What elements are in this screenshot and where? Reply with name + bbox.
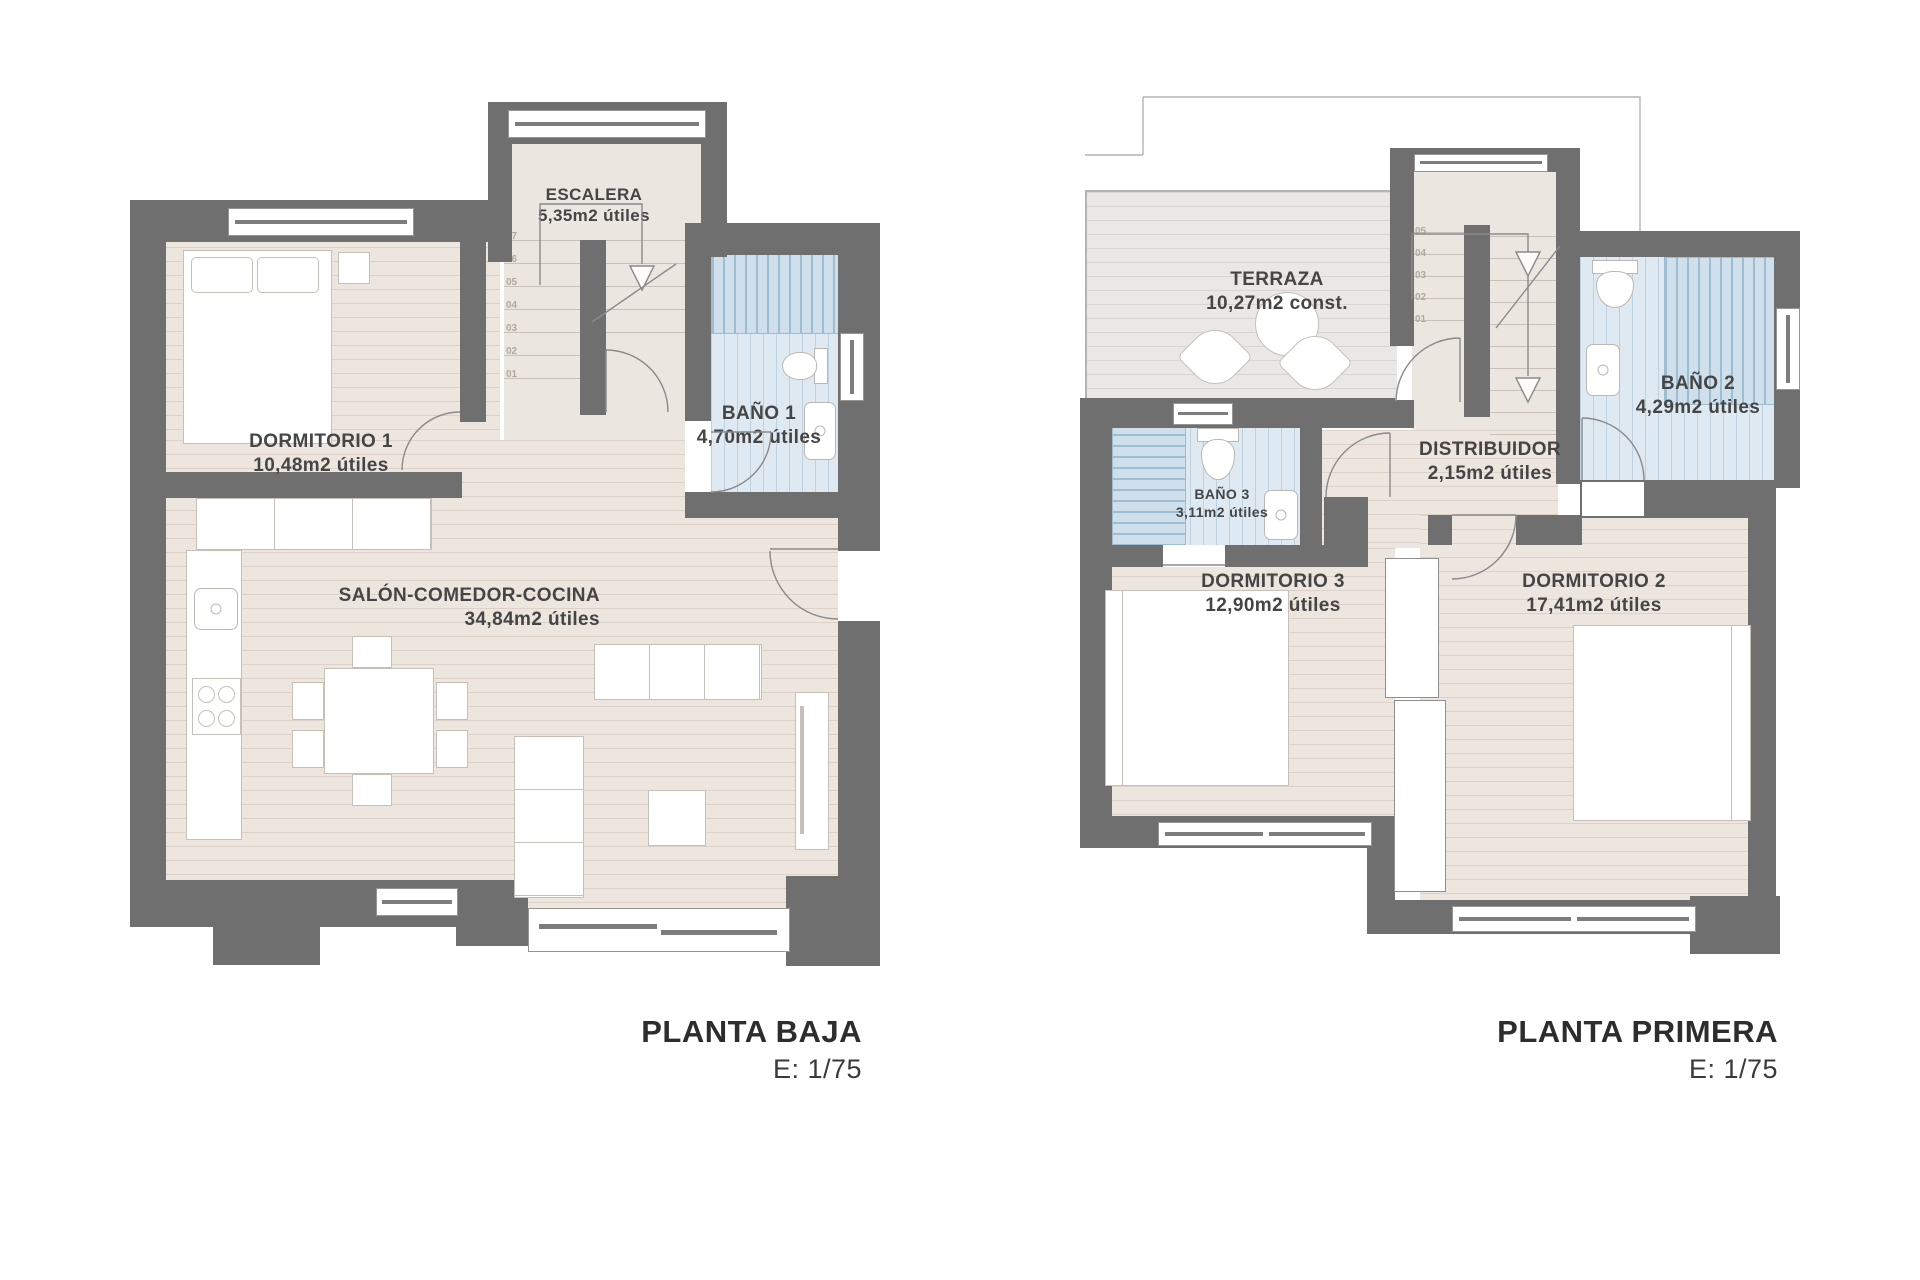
linework-overlay bbox=[0, 0, 1920, 1280]
door-arc-entry bbox=[770, 549, 838, 619]
floorplan-sheet: { "document": { "background": "#ffffff" … bbox=[0, 0, 1920, 1280]
stair-guide-line bbox=[540, 204, 642, 285]
door-arc-stair-upper bbox=[1396, 338, 1460, 402]
door-arc-bano2 bbox=[1582, 418, 1644, 480]
door-arc-dormitorio2 bbox=[1452, 515, 1516, 579]
stair-direction-arrow bbox=[1516, 252, 1540, 276]
door-arc-bano1 bbox=[711, 432, 771, 492]
stair-guide-line bbox=[1412, 234, 1528, 376]
door-arc-stair bbox=[606, 350, 668, 412]
stair-direction-arrow bbox=[1516, 378, 1540, 402]
roof-outline bbox=[1085, 97, 1640, 231]
door-arc-dormitorio1 bbox=[402, 412, 460, 470]
door-arc-dormitorio3 bbox=[1326, 433, 1390, 497]
stair-direction-arrow bbox=[630, 266, 654, 290]
